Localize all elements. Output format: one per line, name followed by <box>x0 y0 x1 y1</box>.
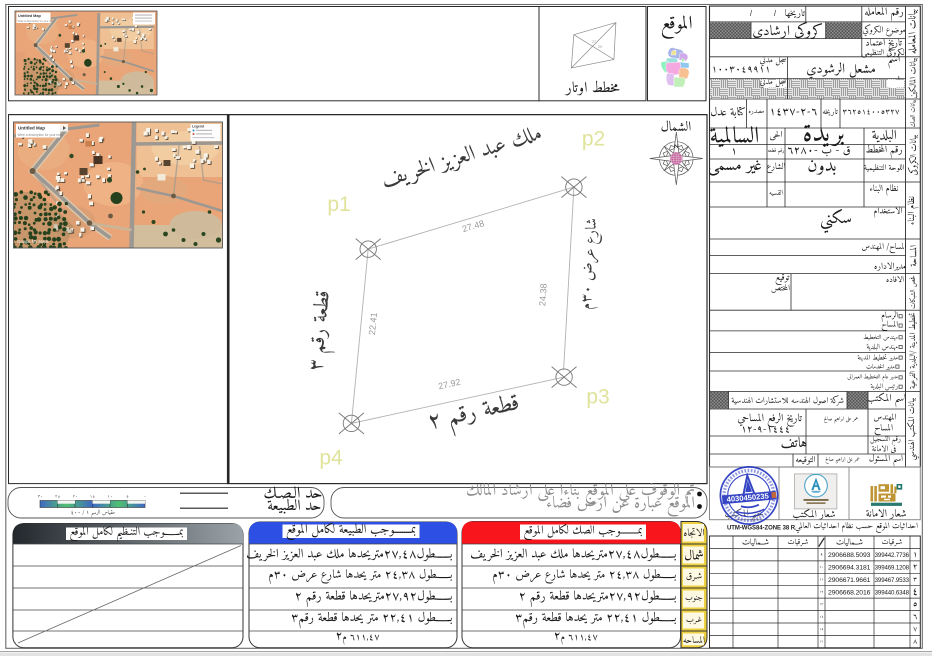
svg-text:Google My Maps: Google My Maps <box>17 239 49 244</box>
svg-text:22.41: 22.41 <box>367 312 379 335</box>
svg-text:/: / <box>750 9 753 18</box>
svg-text:2906694.3181: 2906694.3181 <box>828 565 871 572</box>
svg-text:Untitled Map: Untitled Map <box>18 126 45 131</box>
svg-text:p2: p2 <box>582 128 605 151</box>
svg-text:29: 29 <box>598 45 602 49</box>
svg-text:399440.6348: 399440.6348 <box>875 589 910 596</box>
svg-text:/: / <box>774 9 777 18</box>
svg-text:Write a description for your m: Write a description for your map. <box>18 133 64 137</box>
svg-text:Write a description for your m: Write a description for your map. <box>18 19 56 23</box>
svg-text:24.38: 24.38 <box>537 283 549 306</box>
svg-text:2906668.2016: 2906668.2016 <box>828 589 871 596</box>
svg-text:p1: p1 <box>327 193 350 216</box>
svg-text:p4: p4 <box>319 447 343 470</box>
svg-text:UTM-WGS84-ZONE 38 R: UTM-WGS84-ZONE 38 R <box>727 525 796 531</box>
svg-text:27: 27 <box>592 40 596 44</box>
svg-text:p3: p3 <box>586 386 609 409</box>
svg-text:4030450235: 4030450235 <box>726 491 770 504</box>
svg-text:399442.7736: 399442.7736 <box>875 552 910 559</box>
svg-text:399469.1208: 399469.1208 <box>875 565 910 572</box>
svg-text:399467.9533: 399467.9533 <box>875 577 910 584</box>
svg-text:Legend: Legend <box>192 125 204 129</box>
svg-text:2906688.5093: 2906688.5093 <box>828 552 871 559</box>
svg-text:Untitled Map: Untitled Map <box>18 14 41 18</box>
svg-text:2906671.9661: 2906671.9661 <box>828 577 871 584</box>
svg-text:27.92: 27.92 <box>437 377 461 392</box>
